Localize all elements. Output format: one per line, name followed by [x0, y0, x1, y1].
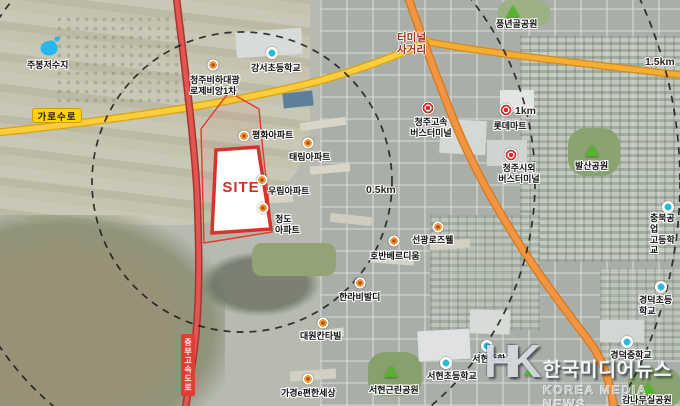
biha-daekwang-rosevien-apt-label: 청주비하대광 로제비앙1차 [190, 75, 240, 97]
distance-label-1km: 1km [515, 105, 536, 117]
biha-daekwang-rosevien-apt-marker [208, 60, 219, 71]
hoban-berdium-apt-marker [389, 236, 400, 247]
chungbuk-technical-high-school-marker [662, 201, 674, 213]
daewon-cantavil-apt-marker [318, 318, 329, 329]
watermark-subtitle: KOREA MEDIA NEWS [543, 383, 680, 406]
cheongju-express-bus-terminal-marker [422, 102, 435, 115]
watermark-text: 한국미디어뉴스 KOREA MEDIA NEWS [543, 353, 680, 406]
jubong-reservoir-label: 주봉저수지 [27, 60, 68, 71]
cheongju-intercity-bus-terminal-label: 청주시외 버스터미널 [498, 163, 539, 185]
gyeongdeok-elementary-school-label: 경덕초등학교 [639, 295, 680, 317]
pungnyeongol-park-marker [506, 5, 520, 17]
watermark-name: 한국미디어뉴스 [543, 353, 680, 382]
seongwang-rosewell-apt-marker [433, 222, 444, 233]
hoban-berdium-apt-label: 호반베르디움 [370, 251, 420, 262]
gagyeong-epyeonhansesang-apt-marker [303, 374, 314, 385]
site-label: SITE [212, 179, 270, 196]
taerim-apt-label: 태림아파트 [289, 152, 330, 163]
watermark: HK 한국미디어뉴스 KOREA MEDIA NEWS [484, 340, 680, 406]
seongwang-rosewell-apt-label: 선광로즈웰 [412, 235, 453, 246]
expressway-road-label: 중부고속도로 [181, 334, 195, 396]
seohyeon-elementary-school-marker [440, 357, 452, 369]
seohyeon-neighborhood-park-label: 서현근린공원 [369, 385, 419, 396]
distance-label-1500m: 1.5km [645, 56, 675, 68]
cheongdo-apt-marker [258, 203, 269, 214]
balsan-park-marker [585, 144, 599, 156]
site-location-map: SITE 가로수로 중부고속도로 터미널 사거리 0.5km 1km 1.5km… [0, 0, 680, 406]
seohyeon-elementary-school-label: 서현초등학교 [427, 371, 477, 382]
cheongju-intercity-bus-terminal-marker [505, 149, 518, 162]
balsan-park-label: 발산공원 [575, 161, 608, 172]
distance-label-500m: 0.5km [366, 184, 396, 196]
gagyeong-epyeonhansesang-apt-label: 가경e편한세상 [281, 388, 336, 399]
gangseo-elementary-school-marker [266, 47, 278, 59]
gangseo-elementary-school-label: 강서초등학교 [251, 63, 301, 74]
halla-vivaldi-apt-label: 한라비발디 [339, 292, 380, 303]
garosuro-road-label: 가로수로 [32, 108, 82, 123]
lotte-mart-marker [500, 104, 513, 117]
east-branch-road [428, 42, 680, 76]
pyeonghwa-apt-marker [239, 131, 250, 142]
cheongdo-apt-label: 청도 아파트 [275, 214, 300, 236]
jubong-reservoir-marker [41, 41, 58, 56]
terminal-junction-label: 터미널 사거리 [397, 33, 426, 56]
daewon-cantavil-apt-label: 대원칸타빌 [300, 331, 341, 342]
woorim-apt-label: 우림아파트 [268, 186, 309, 197]
taerim-apt-marker [303, 138, 314, 149]
cheongju-express-bus-terminal-label: 청주고속 버스터미널 [410, 117, 451, 139]
watermark-logo: HK [484, 340, 540, 406]
chungbuk-technical-high-school-label: 충북공업 고등학교 [650, 213, 680, 256]
halla-vivaldi-apt-marker [355, 278, 366, 289]
lotte-mart-label: 롯데마트 [493, 121, 526, 132]
pungnyeongol-park-label: 풍년골공원 [496, 19, 537, 30]
seohyeon-neighborhood-park-marker [384, 365, 398, 377]
gyeongdeok-elementary-school-marker [655, 281, 667, 293]
pyeonghwa-apt-label: 평화아파트 [252, 130, 293, 141]
